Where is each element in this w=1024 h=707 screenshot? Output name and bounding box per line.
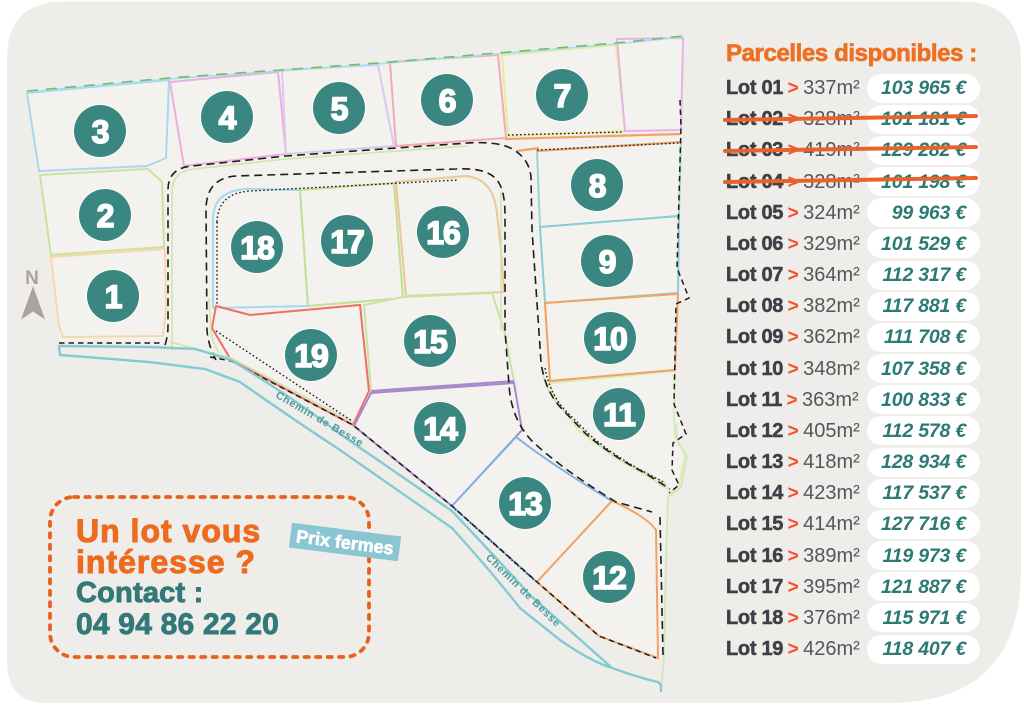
svg-text:04 94 86 22 20: 04 94 86 22 20 <box>76 608 279 641</box>
svg-text:6: 6 <box>439 83 456 119</box>
svg-text:12: 12 <box>592 560 626 596</box>
svg-text:2: 2 <box>97 198 114 234</box>
svg-text:N: N <box>25 268 39 289</box>
svg-text:intéresse ?: intéresse ? <box>76 544 256 580</box>
svg-text:18: 18 <box>240 230 274 266</box>
svg-text:1: 1 <box>105 279 122 315</box>
svg-text:8: 8 <box>589 168 606 204</box>
svg-text:13: 13 <box>508 486 542 522</box>
svg-text:5: 5 <box>331 91 348 127</box>
svg-text:19: 19 <box>294 338 328 374</box>
svg-text:10: 10 <box>593 321 627 357</box>
svg-text:17: 17 <box>330 224 364 260</box>
svg-text:11: 11 <box>603 397 635 433</box>
svg-text:14: 14 <box>423 411 458 447</box>
svg-text:9: 9 <box>599 244 616 280</box>
svg-text:4: 4 <box>219 100 237 136</box>
svg-text:7: 7 <box>554 78 571 114</box>
svg-text:Contact :: Contact : <box>76 577 203 609</box>
svg-text:16: 16 <box>426 215 460 251</box>
svg-text:15: 15 <box>413 324 447 360</box>
svg-text:3: 3 <box>92 114 109 150</box>
